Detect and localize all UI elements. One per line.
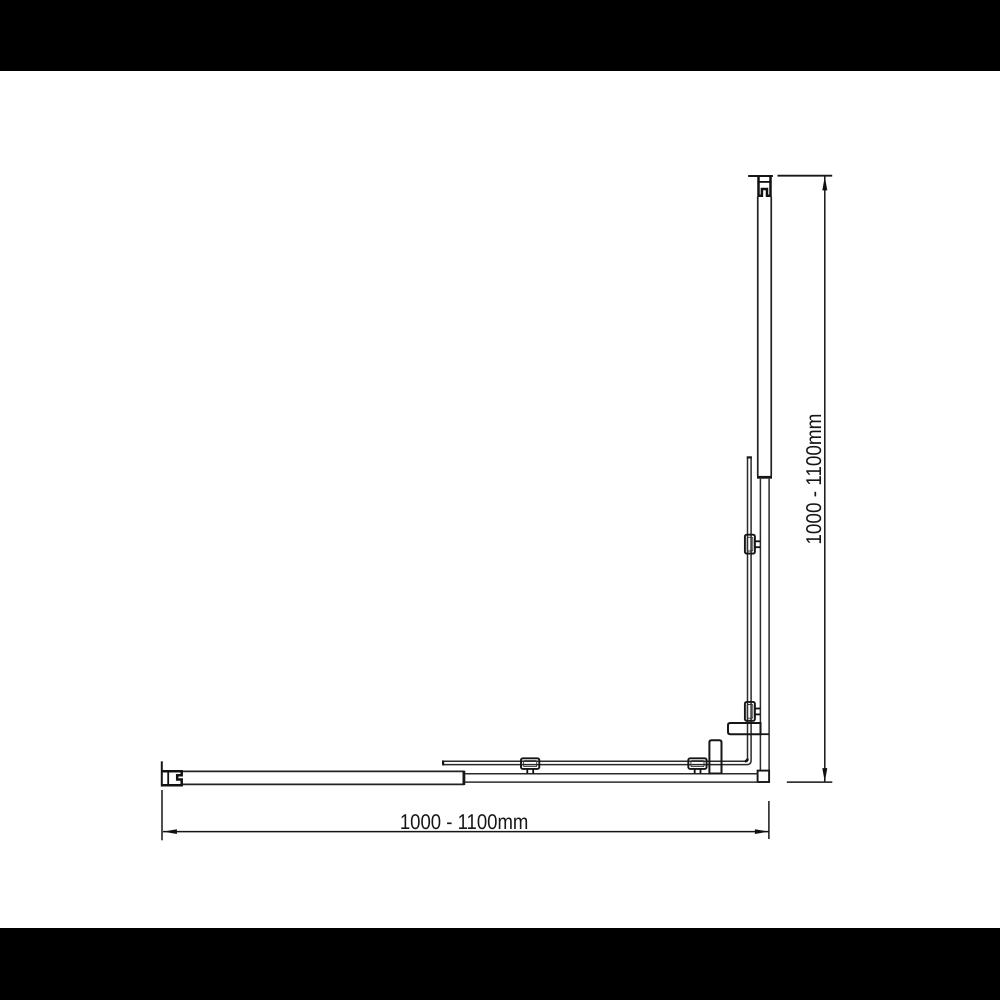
svg-text:1000 - 1100mm: 1000 - 1100mm xyxy=(400,810,529,834)
svg-text:1000 - 1100mm: 1000 - 1100mm xyxy=(802,414,826,545)
